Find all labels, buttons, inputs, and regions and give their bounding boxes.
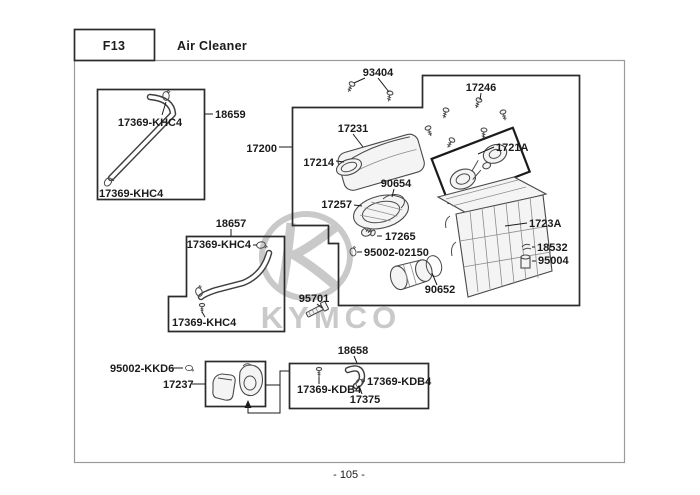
page-number: - 105 -	[333, 469, 365, 481]
label-17369-khc4-a: 17369-KHC4	[118, 117, 183, 129]
kymco-watermark: KYMCO	[261, 214, 401, 335]
label-17369-khc4-b: 17369-KHC4	[99, 188, 164, 200]
label-17237: 17237	[163, 379, 194, 391]
label-95002-kkd6: 95002-KKD6	[110, 363, 174, 375]
bolt-17369-khc4-d-icon	[199, 303, 204, 313]
section-code: F13	[103, 39, 125, 53]
label-17200: 17200	[246, 143, 277, 155]
label-18659: 18659	[215, 109, 246, 121]
screw-17246-f-icon	[500, 109, 508, 121]
label-18658: 18658	[338, 345, 369, 357]
kymco-emblem-k-arms-icon	[294, 227, 338, 288]
label-17375: 17375	[350, 394, 381, 406]
label-17265: 17265	[385, 231, 416, 243]
label-90654: 90654	[381, 178, 412, 190]
label-17214: 17214	[303, 157, 334, 169]
label-95004: 95004	[538, 255, 569, 267]
part-air-cleaner-case-1723A	[438, 177, 552, 297]
screw-17246-a-icon	[473, 97, 482, 109]
label-17369-khc4-c: 17369-KHC4	[187, 239, 252, 251]
label-18532: 18532	[537, 242, 568, 254]
catalog-page: F13 Air Cleaner - 105 - KYMCO	[0, 0, 700, 495]
hose-18659-box	[98, 90, 205, 200]
label-1721A: 1721A	[496, 142, 528, 154]
part-tube-95004	[521, 255, 530, 268]
screw-17246-c-icon	[425, 125, 434, 137]
diagram-canvas: F13 Air Cleaner - 105 - KYMCO	[0, 0, 700, 495]
connector-arrow-icon	[245, 400, 252, 408]
part-breather-hose-18657	[201, 253, 269, 297]
screw-17246-b-icon	[441, 107, 449, 119]
label-1723A: 1723A	[529, 218, 561, 230]
label-17369-khc4-d: 17369-KHC4	[172, 317, 237, 329]
label-17231: 17231	[338, 123, 369, 135]
label-17246: 17246	[466, 82, 497, 94]
label-90652: 90652	[425, 284, 456, 296]
page-title: Air Cleaner	[177, 39, 247, 53]
label-18657: 18657	[216, 218, 247, 230]
label-17369-kdb4-b: 17369-KDB4	[367, 376, 432, 388]
bolt-17369-kdb4-left-icon	[316, 367, 321, 377]
label-93404: 93404	[363, 67, 394, 79]
label-17257: 17257	[321, 199, 352, 211]
screw-93404-b-icon	[386, 91, 394, 102]
screw-17246-d-icon	[445, 137, 455, 149]
part-resonator-17237	[213, 364, 263, 400]
clamp-95002-kkd6-icon	[185, 365, 193, 371]
label-95701: 95701	[299, 293, 330, 305]
label-95002-02150: 95002-02150	[364, 247, 429, 259]
